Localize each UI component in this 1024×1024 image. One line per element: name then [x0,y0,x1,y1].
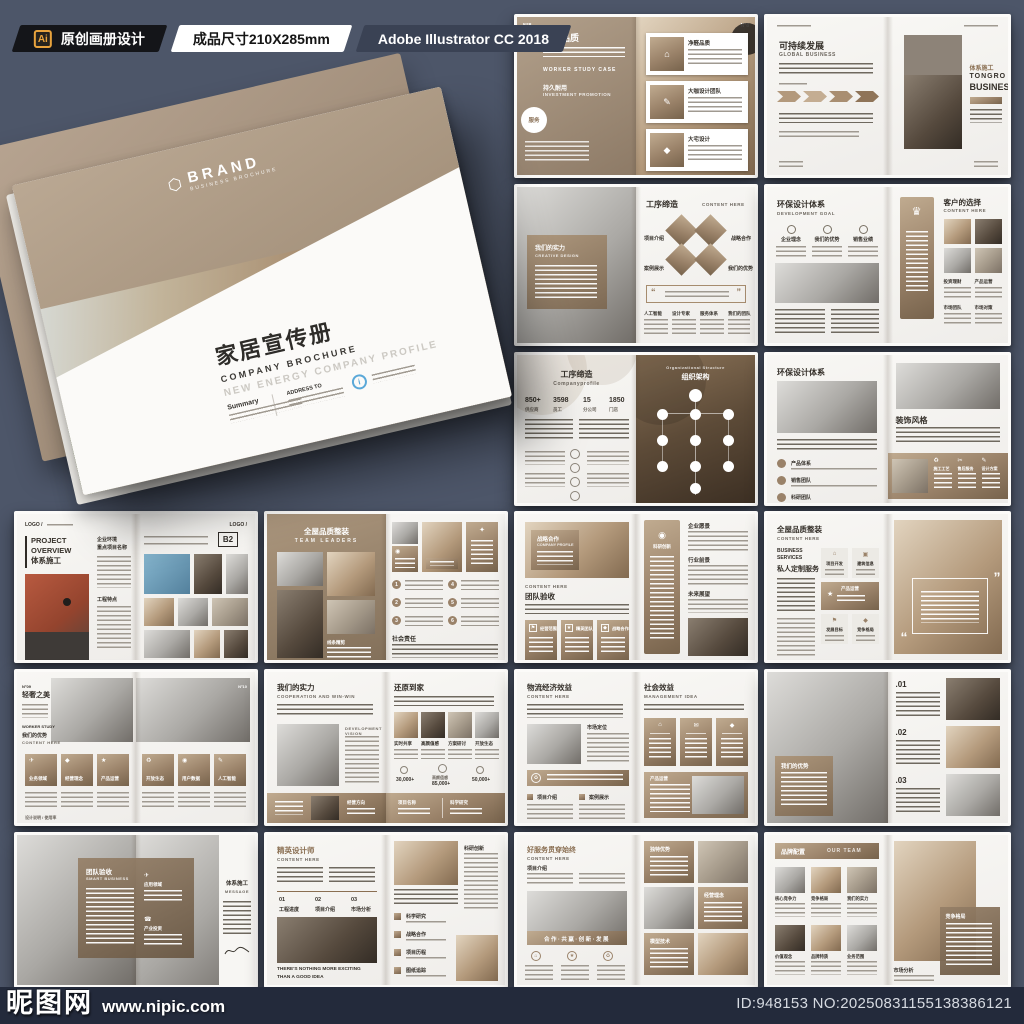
page-subtitle: DEVELOPMENT GOAL [777,211,835,216]
header-tag2-label: 成品尺寸210X285mm [193,29,330,49]
text-lines [525,419,573,441]
text-lines [525,451,565,465]
card-title: 战略合作 [612,626,629,632]
page-left: 工序缔造 Companyprofile 850+ 供应商 3598 员工 15 … [517,355,636,503]
ring-icon [476,766,484,774]
diamond-cluster [668,215,724,277]
page-left: 物流经济效益 CONTENT HERE 市场定位 ♻ 项目介绍 案例展示 [517,672,636,823]
band-slogan: 合作·共赢·创新·发展 [527,935,627,943]
header-tag3-label: Adobe Illustrator CC 2018 [378,31,549,47]
text-lines [811,961,841,975]
overlay-subtitle: COMPANY PROFILE [537,543,574,547]
section-title: 私人定制服务 [777,564,819,574]
tag-row: WORKER STUDY CASE [543,67,616,73]
band-label: 施工工艺 [934,466,950,472]
page-title: 可持续发展 [779,39,824,52]
service-card: ⌂ 项目开发 [821,548,848,578]
card-title: 产品运营 [101,776,119,782]
plane-icon: ✈ [29,757,34,764]
number-badge: 1 [392,580,401,589]
page-subtitle: CONTENT HERE [525,584,568,589]
column-label: 市场对策 [975,305,993,311]
stat-value: 1850 [609,397,625,404]
page-right: 还原到家 实时共享 高颜值感 方案研讨 开放生态 30,000+ 高颜值感 85… [386,672,505,823]
text-lines [848,246,878,259]
diamond-label: 战略合作 [731,235,751,242]
panel-title: 科研创新 [644,544,680,550]
section-label: 市场分析 [894,967,914,974]
icon-label: 应用领域 [144,882,162,888]
spread-16: 精英设计师 CONTENT HERE 01 工程进度 02 项目介绍 03 市场… [264,832,508,988]
text-lines [856,569,875,575]
circle-badge: 服务 [521,107,547,133]
card-title: 大咖设计团队 [688,87,721,95]
grid-label: 核心竞争力 [775,896,796,902]
pen-icon: ✎ [218,757,223,764]
pen-icon: ✎ [650,85,684,119]
page-right: 体系施工 TONGRO BUSINESS [888,17,1009,175]
text-lines [688,599,748,613]
page-left: 我们的实力 COOPERATION AND WIN-WIN DEVELOPMEN… [267,672,386,823]
ring-icon [787,225,796,234]
text-lines [688,49,742,67]
spread-18: 品牌配置 OUR TEAM 核心竞争力 竞争格局 我们的实力 价值观念 品牌特质… [764,832,1011,988]
photo [392,522,418,544]
text-lines [777,618,815,658]
title-line: 体系施工 [31,556,71,566]
text-lines [779,161,803,167]
text-lines [471,540,493,566]
text-lines [448,749,472,759]
section-label: 案例展示 [589,794,609,801]
photo [904,35,962,75]
text-lines [25,792,57,810]
brown-band: 经营方向 [267,793,386,823]
column-label: 人工智能 [644,311,662,317]
quote-close-icon: ” [994,569,1001,585]
page-subtitle: Companyprofile [517,381,636,387]
brown-card-wide: ★ 产品运营 [821,582,879,610]
bullet-square [394,967,401,974]
bullet-square [394,931,401,938]
arrow-step [855,91,879,102]
section-label: 行业前景 [688,556,710,564]
card-title: 用户数据 [182,776,200,782]
brown-panel: 产品运营 [644,772,748,818]
overlay-subtitle: SMART BUSINESS [86,876,129,881]
item-number: .02 [896,728,907,737]
brown-band: ♻ 施工工艺 ✂ 售后服务 ✎ 设计方案 [888,453,1009,499]
overlay-subtitle: CREATIVE DESIGN [535,253,579,258]
diamond-icon: ◆ [852,617,879,624]
card-title: 产品运营 [821,586,879,592]
text-lines [527,873,573,885]
band-label: 售后服务 [958,466,974,472]
spread-7: LOGO / PROJECT OVERVIEW 体系施工 企业环境 重点项目名称… [14,511,258,663]
text-lines [728,319,750,337]
photo [644,887,694,929]
text-lines [777,578,815,612]
watermark: 昵图网 www.nipic.com [6,981,225,1020]
photo [775,867,805,893]
column-label: 投资理财 [944,279,962,285]
text-lines [535,265,597,301]
text-lines [825,635,844,641]
page-title: 还原到家 [394,682,424,693]
card-title: 经营理念 [65,776,83,782]
page-left: 战略合作 COMPANY PROFILE CONTENT HERE 团队验收 ⚑… [517,514,636,660]
arrow-step [803,91,827,102]
brown-bar: ♻ [527,770,629,786]
footer-note: 设计说明 / 使用率 [25,815,56,821]
sofa-decor [25,632,89,660]
stat-value: 3598 [553,397,569,404]
quote-close-icon: ” [737,287,742,297]
spread-12: 我们的实力 COOPERATION AND WIN-WIN DEVELOPMEN… [264,669,508,826]
text-lines [700,319,724,337]
header-tag-original: Ai 原创画册设计 [12,25,168,52]
column-label: 设计专家 [672,311,690,317]
brown-card: ◆ [716,718,748,766]
text-lines [97,792,129,810]
text-lines [47,524,73,527]
diamond-label: 我们的优势 [728,265,753,272]
page-right: 独特优势 经营理念 模型技术 [636,835,755,985]
number-badge: 4 [448,580,457,589]
page-subtitle: COOPERATION AND WIN-WIN [277,694,355,699]
star-icon: ★ [101,757,106,764]
header-bar: Ai 原创画册设计 成品尺寸210X285mm Adobe Illustrato… [16,25,567,52]
page-title: 我们的实力 [277,682,315,693]
spread-11: N°09 轻奢之美 WORKER STUDY 我们的优势 CONTENT HER… [14,669,258,826]
number-badge: 2 [392,598,401,607]
photo [194,554,222,594]
text-lines [144,536,208,540]
text-lines [775,903,805,917]
ring-icon [438,764,447,773]
service-card: ▣ 建筑信息 [852,548,879,578]
page-left: 环保设计体系 产品体系 销售团队 科研团队 [767,355,888,503]
panel-title: 产品运营 [650,776,668,782]
org-node [723,435,734,446]
diamond-icon: ◆ [650,133,684,167]
page-right: .01 .02 .03 [888,672,1009,823]
text-lines [392,644,498,658]
text-lines [649,738,671,760]
chart-subtitle: Organizational Structure [636,365,755,370]
column-label: 服务体系 [700,311,718,317]
page-right: LOGO / B2 [136,514,255,660]
page-subtitle: GLOBAL BUSINESS [779,52,836,58]
photo [688,618,748,656]
text-lines [327,647,371,658]
text-lines [775,961,805,975]
section-label: 科研创新 [464,845,484,852]
text-lines [547,774,623,782]
recycle-icon: ♻ [603,951,613,961]
text-lines [944,313,971,325]
section-title: 我们的优势 [22,732,47,739]
list-label: 项目历程 [406,949,426,956]
quote-line: THAN A GOOD IDEA [277,975,324,980]
page-title: 社会效益 [644,682,674,693]
diamond-label: 项目介绍 [644,235,664,242]
text-lines [525,965,553,981]
brown-card: ✉ [680,718,712,766]
logo-text: BUSINESS [970,82,1009,92]
card-title: 项目开发 [821,561,848,567]
spread-15: 体系施工 MESSAGE 团队验收 SMART BUSINESS ✈ 应用领域 … [14,832,258,988]
page-left: 全屋品质整装 TEAM LEADERS 线条精剪 [267,514,386,660]
card-title: 业务领域 [29,776,47,782]
page-left: 我们的优势 [767,672,888,823]
text-lines [406,939,446,943]
text-lines [144,543,208,547]
spread-4: 环保设计体系 DEVELOPMENT GOAL 企业理念 我们的优势 销售业绩 … [764,184,1011,346]
column-label: 企业理念 [775,236,807,243]
card-title: 发展目标 [821,627,848,633]
bullet-icon [777,459,786,468]
page-title: 品牌配置 [781,847,805,856]
photo [277,590,323,658]
feature-card: ✎ 大咖设计团队 [646,81,748,123]
stat-value: 85,000+ [432,781,450,787]
text-lines [597,965,625,981]
watermark-site-url: www.nipic.com [102,997,225,1017]
brown-card: ◆ 战略合作 [597,620,629,660]
card-title: 经营理念 [704,892,724,899]
photo [277,724,339,786]
photo [394,841,458,885]
section-label: 项目介绍 [527,865,547,872]
photo [475,712,499,738]
panel-title: 体系施工 [219,879,255,887]
overlay-panel: 我们的优势 [775,756,833,816]
value-column: 销售业绩 [847,225,879,259]
page-left: 精英设计师 CONTENT HERE 01 工程进度 02 项目介绍 03 市场… [267,835,386,985]
photo [311,796,339,820]
page-subtitle: CONTENT HERE [702,202,745,207]
photo [144,598,174,626]
text-lines [394,696,494,706]
service-card: ⚑ 发展目标 [821,614,848,644]
text-lines [601,637,625,655]
page-subtitle: MANAGEMENT IDEA [644,694,698,699]
page-title: 工序缔造 [517,369,636,380]
photo [847,867,877,893]
logo-text: LOGO / [25,522,43,528]
feature-card: ◆ 大宅设计 [646,129,748,171]
page-right: 社会效益 MANAGEMENT IDEA ⌂ ✉ ◆ 产品运营 [636,672,755,823]
title-stack: PROJECT OVERVIEW 体系施工 [31,536,71,566]
text-lines [856,635,875,641]
page-subtitle: CONTENT HERE [527,856,570,861]
header-tag1-label: 原创画册设计 [61,29,145,49]
vision-label: DEVELOPMENT VISION [345,726,386,736]
text-lines [525,473,565,487]
arrow-step [829,91,853,102]
card-title: 独特优势 [650,846,670,853]
page-title: 环保设计体系 [777,367,825,378]
text-lines [831,309,879,335]
text-lines [896,692,940,718]
text-lines [406,921,446,925]
org-node [690,461,701,472]
text-lines [811,903,841,917]
text-lines [688,145,742,163]
scissors-icon: ✂ [958,457,963,464]
bullet-label: 产品体系 [791,460,811,467]
text-lines [685,738,707,760]
stat-label: 门店 [609,407,618,413]
card-title: 净醛品质 [688,39,710,47]
spread-8: 全屋品质整装 TEAM LEADERS 线条精剪 ◉ ✦ 1 4 2 5 3 [264,511,508,663]
brown-card: ⚑ 经营范围 [525,620,557,660]
mail-icon: ✉ [680,722,712,729]
text-lines [894,975,934,981]
stat-value: 50,000+ [472,777,490,783]
page-title: 环保设计体系 [777,199,825,210]
text-lines [97,606,131,648]
page-title: 团队验收 [525,591,555,602]
step-number: 01 [279,897,285,903]
column-label: 重点项目名称 [97,544,127,551]
bullet-icon [777,493,786,502]
step-label: 工程进度 [279,906,299,913]
section-title: 社会责任 [392,634,416,643]
card-title: 模型技术 [650,938,670,945]
overlay-panel: 团队验收 SMART BUSINESS ✈ 应用领域 ☎ 产业投资 [78,858,194,958]
home-icon: ⌂ [644,722,676,728]
page-right: ◉ 科研创新 企业愿景 行业前景 未来展望 [636,514,755,660]
text-lines [777,25,811,28]
text-lines [525,141,589,163]
photo [144,554,190,594]
card-title: 精英团队 [576,626,593,632]
band-label: 科学研究 [450,800,468,806]
quote-open-icon: “ [651,287,656,297]
spread-17: 好服务贯穿始终 CONTENT HERE 项目介绍 合作·共赢·创新·发展 ⌂ … [514,832,758,988]
text-lines [587,473,629,487]
text-lines [405,616,443,626]
section-subtitle: CONTENT HERE [22,740,61,745]
overlay-title: 我们的实力 [535,243,565,252]
text-lines [650,856,688,878]
text-lines [561,965,589,981]
text-lines [86,888,134,946]
text-lines [896,740,940,766]
text-lines [525,604,629,614]
home-icon: ⌂ [650,37,684,71]
service-card: ◆ 竞争格局 [852,614,879,644]
text-lines [946,923,992,967]
value-column: 我们的优势 [811,225,843,259]
text-lines [779,131,859,139]
photo [394,712,418,738]
number-badge: 3 [392,616,401,625]
text-lines [906,231,928,293]
text-lines [775,309,825,335]
grid-label: 价值观念 [775,954,792,960]
bullet-label: 科研团队 [791,494,811,501]
process-arrows [777,91,879,102]
page-title: 全屋品质整装 [777,524,822,535]
photo [975,248,1002,273]
org-node [657,435,668,446]
feature-card: ⌂ 净醛品质 [646,33,748,75]
text-lines [779,63,873,75]
spread-14: 我们的优势 .01 .02 .03 [764,669,1011,826]
photo-label: 高颜值感 [421,741,439,747]
text-lines [406,957,446,961]
page-title: 全屋品质整装 [267,526,386,537]
text-lines [650,948,688,970]
diamond-icon: ◆ [65,757,70,764]
page-subtitle: OUR TEAM [827,848,862,854]
photo [144,630,190,658]
title-bar [25,536,27,568]
org-node [690,435,701,446]
header-tag-software: Adobe Illustrator CC 2018 [356,25,572,52]
stat-value: 15 [583,397,591,404]
trophy-icon: ♛ [900,205,934,218]
brown-card: 独特优势 [644,841,694,883]
adobe-illustrator-icon: Ai [34,30,52,48]
image-id-text: ID:948153 NO:20250831155138386121 [736,995,1012,1012]
photo [194,630,220,658]
text-lines [958,473,976,491]
section-title: 持久耐用 [543,83,567,92]
diamond-card [665,214,698,247]
text-lines [579,804,625,820]
title-line: PROJECT [31,536,71,546]
photo [946,678,1000,720]
quote-box: ” “ [912,578,988,634]
spread-3: 我们的实力 CREATIVE DESIGN 工序缔造 CONTENT HERE … [514,184,758,346]
ring-icon [570,491,580,501]
photo [975,219,1002,244]
photo [904,75,962,149]
text-lines [277,704,373,716]
photo [226,554,248,594]
page-title: 客户的选择 [944,197,982,208]
text-lines [791,485,877,488]
column-label: 市场团队 [944,305,962,311]
page-right: Organizational Structure 组织架构 [636,355,755,503]
text-lines [178,792,210,810]
card-title: 开放生态 [146,776,164,782]
brown-card: ★ 产品运营 [97,754,129,786]
page-left: 我们的实力 CREATIVE DESIGN [517,187,636,343]
brown-card: ⌂ [644,718,676,766]
list-label: 科学研究 [406,913,426,920]
spread-6: 环保设计体系 产品体系 销售团队 科研团队 装饰风格 ♻ 施工工艺 ✂ 售后服务… [764,352,1011,506]
brown-band: 合作·共赢·创新·发展 [527,931,627,945]
text-lines [934,473,952,491]
text-lines [464,853,498,909]
photo [178,598,208,626]
title-line: OVERVIEW [31,546,71,556]
step-number: 02 [315,897,321,903]
column-label: 产品运营 [975,279,993,285]
text-lines [214,792,246,810]
brown-card: ★ 精英团队 [561,620,593,660]
column-label: 销售业绩 [847,236,879,243]
overlay-card: 战略合作 COMPANY PROFILE [531,530,579,570]
target-icon: ◉ [182,757,187,764]
text-lines [650,784,690,812]
lamp-decor [63,598,71,606]
